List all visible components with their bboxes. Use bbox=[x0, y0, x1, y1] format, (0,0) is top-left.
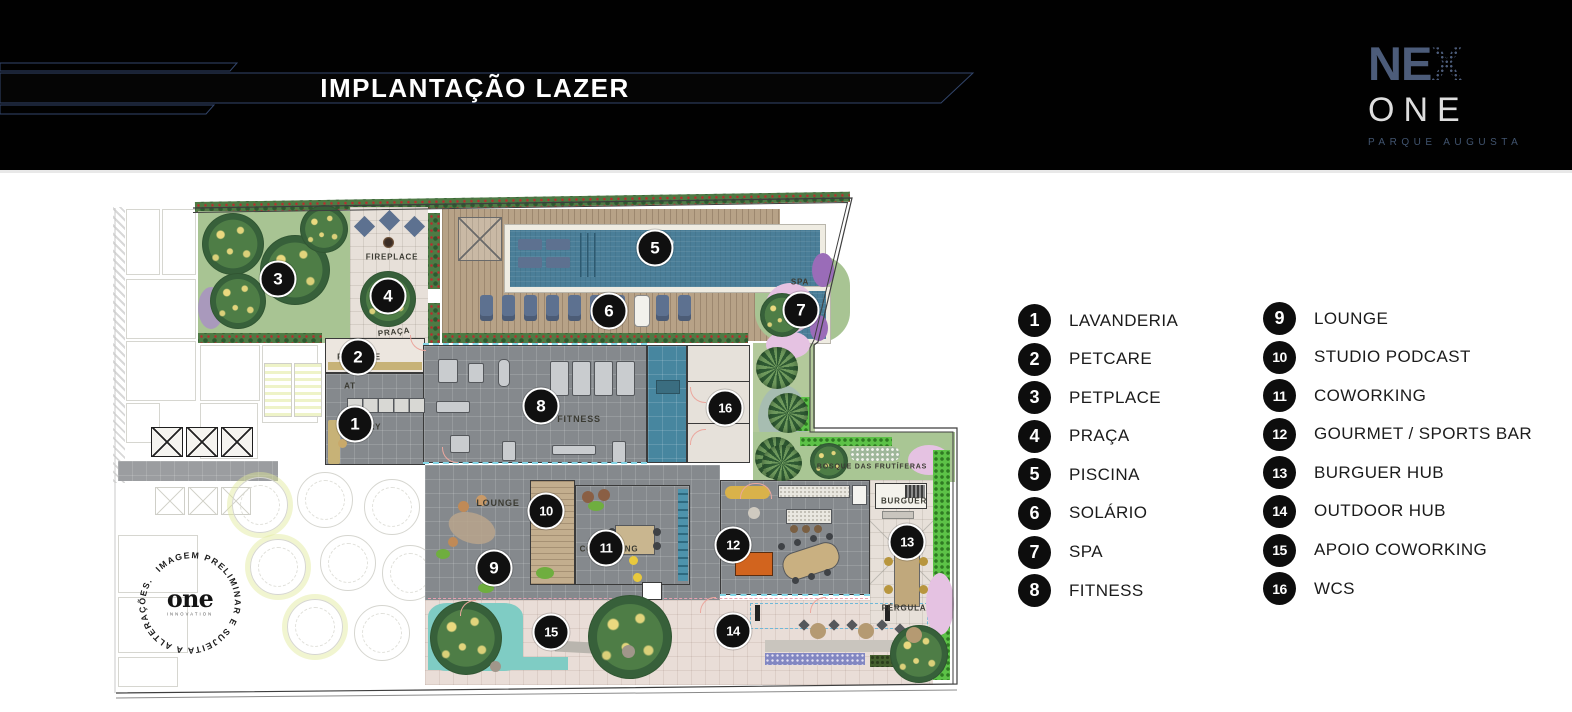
treadmill bbox=[550, 361, 569, 396]
in-pool-lounger bbox=[518, 257, 542, 268]
legend-column-1: 1 LAVANDERIA 2 PETCARE 3 PETPLACE 4 PRAÇ… bbox=[1018, 304, 1178, 613]
faded-garden-circle bbox=[250, 539, 306, 595]
side-table bbox=[748, 507, 760, 519]
stretch-room bbox=[647, 345, 687, 463]
plan-marker-number: 7 bbox=[796, 300, 805, 320]
legend-item-label: FITNESS bbox=[1069, 581, 1144, 601]
faded-garden-circle bbox=[232, 477, 288, 533]
plan-room-label: AT bbox=[344, 382, 356, 391]
elevator bbox=[221, 427, 253, 457]
header-separator bbox=[0, 170, 1572, 173]
lounge-pouf bbox=[458, 501, 469, 512]
header-bar: IMPLANTAÇÃO LAZER NEX ONE PARQUE AUGUSTA bbox=[0, 0, 1572, 170]
plan-marker: 7 bbox=[783, 292, 820, 329]
dining-chair bbox=[778, 543, 785, 550]
sun-lounger bbox=[502, 295, 515, 321]
treadmill bbox=[572, 361, 591, 396]
faded-room bbox=[162, 209, 196, 275]
plan-room-label: BOSQUE DAS FRUTÍFERAS bbox=[817, 464, 927, 471]
plan-room-label: BURGUER bbox=[881, 497, 927, 506]
legend-column-2: 9 LOUNGE 10 STUDIO PODCAST 11 COWORKING … bbox=[1263, 302, 1532, 611]
faded-room bbox=[126, 279, 196, 339]
yellow-stool bbox=[633, 573, 642, 582]
fireplace bbox=[383, 237, 394, 248]
stepping-stone bbox=[622, 645, 635, 658]
floor-plan: IMAGEM PRELIMINAR E SUJEITA A ALTERAÇÕES… bbox=[110, 195, 985, 700]
legend-item: 16 WCS bbox=[1263, 572, 1532, 605]
plant bbox=[536, 567, 554, 579]
brand-logo: NEX ONE PARQUE AUGUSTA bbox=[1368, 40, 1538, 148]
legend-item-label: PETCARE bbox=[1069, 349, 1152, 369]
purple-flower-bed bbox=[765, 653, 865, 665]
plan-room-label: PÉRGULA bbox=[882, 604, 927, 613]
island-stool bbox=[814, 525, 822, 533]
sun-lounger bbox=[480, 295, 493, 321]
gym-machine bbox=[502, 441, 516, 461]
pergula-chair bbox=[884, 585, 893, 594]
faded-garden-circle bbox=[320, 535, 376, 591]
faded-garden-circle bbox=[364, 479, 420, 535]
plan-marker-number: 4 bbox=[383, 286, 392, 306]
legend-item: 12 GOURMET / SPORTS BAR bbox=[1263, 418, 1532, 451]
tree bbox=[810, 443, 848, 479]
legend-number-badge: 13 bbox=[1263, 456, 1296, 489]
elevator bbox=[151, 427, 183, 457]
plan-marker: 9 bbox=[476, 550, 513, 587]
logo-tagline: PARQUE AUGUSTA bbox=[1368, 137, 1538, 148]
vine-hedge bbox=[428, 303, 440, 343]
plan-room-label: FIREPLACE bbox=[366, 253, 419, 262]
plan-marker: 12 bbox=[715, 527, 752, 564]
watermark-stamp: IMAGEM PRELIMINAR E SUJEITA A ALTERAÇÕES… bbox=[134, 547, 246, 659]
tree bbox=[210, 273, 266, 329]
logo-nex-text: NEX bbox=[1368, 40, 1538, 88]
legend-item: 10 STUDIO PODCAST bbox=[1263, 341, 1532, 374]
faded-garden-circle bbox=[354, 605, 410, 661]
plan-marker-number: 6 bbox=[604, 301, 613, 321]
sun-lounger bbox=[568, 295, 581, 321]
white-flower-bed bbox=[850, 447, 900, 461]
outdoor-table bbox=[858, 623, 874, 639]
bench-press bbox=[436, 401, 470, 413]
header-angular-shapes bbox=[0, 0, 1000, 130]
island-stool bbox=[802, 525, 810, 533]
legend-item-label: PETPLACE bbox=[1069, 388, 1161, 408]
legend-number-badge: 9 bbox=[1263, 302, 1296, 335]
plan-marker: 11 bbox=[588, 530, 625, 567]
in-pool-lounger bbox=[546, 257, 570, 268]
legend-item: 3 PETPLACE bbox=[1018, 381, 1178, 414]
deck-pergola bbox=[458, 217, 502, 261]
faded-room bbox=[126, 209, 160, 275]
lounge-pouf bbox=[448, 537, 458, 547]
legend-item-label: SPA bbox=[1069, 542, 1103, 562]
watermark-brand: one bbox=[167, 585, 214, 613]
kitchen-counter bbox=[778, 485, 850, 498]
legend-item-label: WCS bbox=[1314, 579, 1355, 599]
watermark-brand-sub: INNOVATION bbox=[167, 612, 213, 617]
plan-marker-number: 11 bbox=[600, 541, 613, 556]
vine-hedge bbox=[428, 213, 440, 289]
legend-item-label: PISCINA bbox=[1069, 465, 1140, 485]
faded-garden-circle bbox=[287, 599, 343, 655]
plan-marker-number: 14 bbox=[726, 624, 739, 639]
kitchen-island bbox=[786, 509, 832, 524]
logo-x-dotted: X bbox=[1431, 37, 1461, 90]
kiosk-counter bbox=[882, 511, 914, 519]
plan-marker: 16 bbox=[707, 390, 744, 427]
dining-chair bbox=[826, 533, 833, 540]
dining-chair bbox=[794, 539, 801, 546]
legend-item: 7 SPA bbox=[1018, 536, 1178, 569]
legend-item: 8 FITNESS bbox=[1018, 574, 1178, 607]
logo-ne: NE bbox=[1368, 37, 1431, 90]
plan-marker: 2 bbox=[340, 339, 377, 376]
logo-one-text: ONE bbox=[1368, 90, 1538, 130]
plan-marker: 8 bbox=[523, 388, 560, 425]
plan-room-label: FITNESS bbox=[557, 414, 601, 424]
exercise-bike bbox=[498, 359, 510, 387]
legend-number-badge: 10 bbox=[1263, 341, 1296, 374]
palm-tree bbox=[762, 445, 802, 481]
plan-room-label: SPA bbox=[791, 278, 809, 287]
legend-number-badge: 5 bbox=[1018, 458, 1051, 491]
legend-number-badge: 12 bbox=[1263, 418, 1296, 451]
gym-machine bbox=[612, 441, 626, 463]
palm-tree bbox=[768, 393, 808, 433]
barbell-rack bbox=[552, 445, 596, 455]
tree bbox=[300, 205, 348, 253]
island-stool bbox=[790, 525, 798, 533]
bookshelf bbox=[678, 489, 688, 581]
stairs bbox=[294, 363, 322, 417]
yellow-stool bbox=[629, 556, 638, 565]
pergula-chair bbox=[919, 557, 928, 566]
armchair bbox=[598, 489, 610, 501]
elevator-faded bbox=[188, 487, 218, 515]
towel-station bbox=[634, 295, 650, 327]
faded-room bbox=[126, 341, 196, 401]
plan-marker-number: 12 bbox=[726, 538, 739, 553]
tree bbox=[202, 213, 264, 275]
faded-room bbox=[200, 345, 260, 401]
sun-lounger bbox=[524, 295, 537, 321]
legend-number-badge: 3 bbox=[1018, 381, 1051, 414]
sun-lounger bbox=[656, 295, 669, 321]
plan-marker-number: 10 bbox=[539, 504, 552, 519]
glass-wall bbox=[720, 594, 870, 596]
legend-item-label: PRAÇA bbox=[1069, 426, 1130, 446]
plan-marker: 6 bbox=[591, 293, 628, 330]
purple-flowers bbox=[812, 253, 834, 287]
legend-item: 6 SOLÁRIO bbox=[1018, 497, 1178, 530]
vivid-hedge-horizontal bbox=[800, 437, 892, 446]
legend-number-badge: 16 bbox=[1263, 572, 1296, 605]
sun-lounger bbox=[678, 295, 691, 321]
legend-item: 1 LAVANDERIA bbox=[1018, 304, 1178, 337]
plan-marker: 14 bbox=[715, 613, 752, 650]
treadmill bbox=[616, 361, 635, 396]
header-strip-top bbox=[0, 63, 237, 71]
tree bbox=[588, 595, 672, 679]
legend-number-badge: 1 bbox=[1018, 304, 1051, 337]
gym-machine bbox=[438, 359, 458, 383]
elevator bbox=[186, 427, 218, 457]
dining-chair bbox=[810, 535, 817, 542]
plan-marker: 4 bbox=[370, 278, 407, 315]
legend-number-badge: 14 bbox=[1263, 495, 1296, 528]
in-pool-lounger bbox=[546, 239, 570, 250]
legend-number-badge: 7 bbox=[1018, 536, 1051, 569]
plan-marker: 13 bbox=[889, 524, 926, 561]
stepping-stone bbox=[490, 661, 501, 672]
plan-marker-number: 15 bbox=[544, 625, 557, 640]
faded-garden-circle bbox=[297, 472, 353, 528]
legend-item: 9 LOUNGE bbox=[1263, 302, 1532, 335]
elevator-faded bbox=[155, 487, 185, 515]
yoga-mat bbox=[656, 380, 680, 394]
legend-item: 15 APOIO COWORKING bbox=[1263, 534, 1532, 567]
plan-marker-number: 2 bbox=[353, 347, 362, 367]
legend-number-badge: 2 bbox=[1018, 343, 1051, 376]
legend-item-label: GOURMET / SPORTS BAR bbox=[1314, 424, 1532, 444]
legend-number-badge: 11 bbox=[1263, 379, 1296, 412]
outdoor-table bbox=[906, 627, 922, 643]
plan-marker: 10 bbox=[528, 493, 565, 530]
pergula-chair bbox=[919, 585, 928, 594]
coworking-chair bbox=[653, 542, 661, 550]
gym-machine bbox=[468, 363, 484, 383]
plan-marker-number: 9 bbox=[489, 558, 498, 578]
legend-item-label: APOIO COWORKING bbox=[1314, 540, 1487, 560]
legend-item-label: COWORKING bbox=[1314, 386, 1426, 406]
legend-number-badge: 4 bbox=[1018, 420, 1051, 453]
plan-marker: 5 bbox=[637, 230, 674, 267]
legend-number-badge: 15 bbox=[1263, 534, 1296, 567]
post bbox=[755, 605, 760, 621]
legend-number-badge: 6 bbox=[1018, 497, 1051, 530]
plan-marker-number: 1 bbox=[350, 414, 359, 434]
dining-chair bbox=[824, 569, 831, 576]
legend-item: 14 OUTDOOR HUB bbox=[1263, 495, 1532, 528]
lap-lane-lines bbox=[580, 233, 596, 277]
plan-marker-number: 16 bbox=[718, 401, 731, 416]
plan-marker: 1 bbox=[337, 406, 374, 443]
treadmill bbox=[594, 361, 613, 396]
legend-item-label: LAVANDERIA bbox=[1069, 311, 1178, 331]
legend-item: 5 PISCINA bbox=[1018, 458, 1178, 491]
header-strip-bottom bbox=[0, 105, 214, 114]
plant bbox=[436, 549, 450, 559]
plant bbox=[588, 501, 604, 511]
deck-south-hedge bbox=[442, 333, 748, 343]
pergula-chair bbox=[884, 557, 893, 566]
legend-item-label: SOLÁRIO bbox=[1069, 503, 1147, 523]
fridge bbox=[852, 485, 867, 505]
legend-item: 13 BURGUER HUB bbox=[1263, 456, 1532, 489]
glass-wall bbox=[423, 343, 647, 345]
faded-room bbox=[118, 657, 178, 687]
page-title: IMPLANTAÇÃO LAZER bbox=[0, 74, 950, 102]
legend-item: 4 PRAÇA bbox=[1018, 420, 1178, 453]
legend-number-badge: 8 bbox=[1018, 574, 1051, 607]
slide-page: IMPLANTAÇÃO LAZER NEX ONE PARQUE AUGUSTA bbox=[0, 0, 1572, 712]
petplace-hedge bbox=[198, 333, 322, 343]
sun-lounger bbox=[546, 295, 559, 321]
in-pool-lounger bbox=[518, 239, 542, 250]
legend-item-label: STUDIO PODCAST bbox=[1314, 347, 1471, 367]
dining-chair bbox=[792, 577, 799, 584]
plan-marker-number: 8 bbox=[536, 396, 545, 416]
plan-marker: 15 bbox=[533, 614, 570, 651]
palm-tree bbox=[756, 347, 798, 389]
outdoor-table bbox=[810, 623, 826, 639]
legend-item-label: OUTDOOR HUB bbox=[1314, 501, 1446, 521]
plan-room-label: LOUNGE bbox=[476, 498, 519, 508]
legend-item: 11 COWORKING bbox=[1263, 379, 1532, 412]
legend-item: 2 PETCARE bbox=[1018, 343, 1178, 376]
legend-item-label: LOUNGE bbox=[1314, 309, 1388, 329]
plan-marker-number: 13 bbox=[900, 535, 913, 550]
wc-divider bbox=[687, 381, 750, 382]
plan-marker-number: 5 bbox=[650, 238, 659, 258]
plan-marker-number: 3 bbox=[273, 269, 282, 289]
dining-chair bbox=[808, 573, 815, 580]
plan-marker: 3 bbox=[260, 261, 297, 298]
legend-item-label: BURGUER HUB bbox=[1314, 463, 1444, 483]
coworking-chair bbox=[653, 528, 661, 536]
stairs bbox=[264, 363, 292, 417]
pink-flowering-tree bbox=[926, 573, 954, 635]
